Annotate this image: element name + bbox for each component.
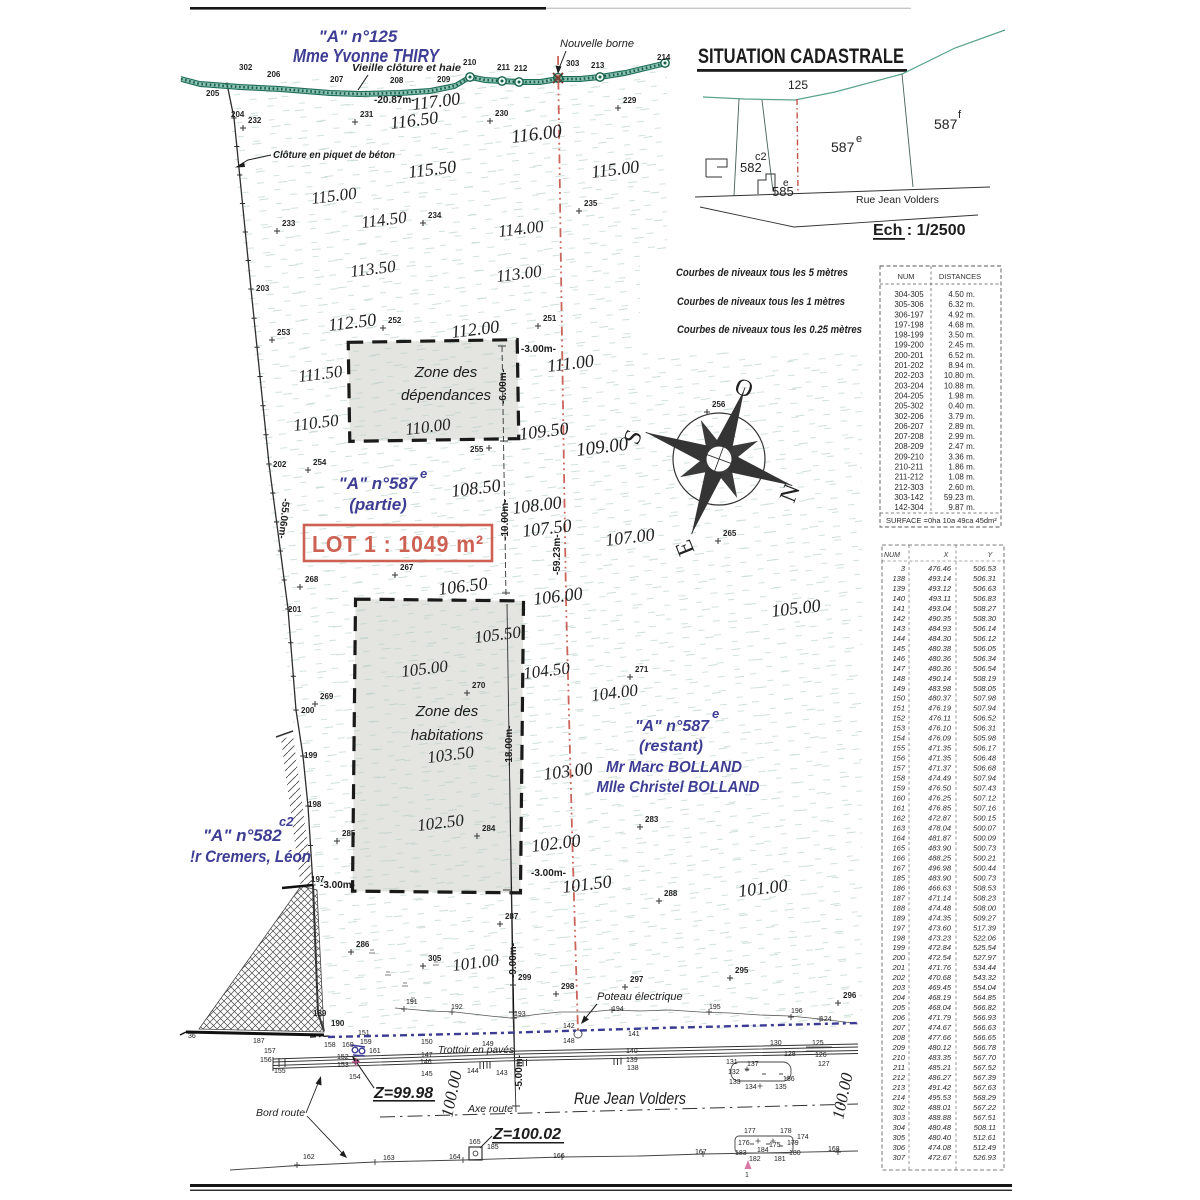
svg-text:Nouvelle borne: Nouvelle borne (560, 38, 634, 50)
svg-text:500.73: 500.73 (973, 873, 997, 882)
svg-text:481.87: 481.87 (928, 834, 952, 843)
svg-text:476.25: 476.25 (928, 794, 952, 803)
svg-text:128: 128 (784, 1051, 796, 1058)
svg-text:508.53: 508.53 (973, 883, 997, 892)
svg-text:8.94 m.: 8.94 m. (948, 361, 975, 370)
svg-text:500.21: 500.21 (973, 853, 996, 862)
svg-text:567.51: 567.51 (973, 1113, 996, 1122)
svg-text:476.09: 476.09 (928, 734, 952, 743)
svg-text:133: 133 (729, 1079, 741, 1086)
svg-text:3.50 m.: 3.50 m. (948, 331, 975, 340)
svg-text:534.44: 534.44 (973, 963, 996, 972)
svg-text:Courbes de niveaux tous les 1: Courbes de niveaux tous les 1 mètres (677, 296, 845, 308)
svg-text:256: 256 (712, 400, 726, 409)
svg-text:303: 303 (566, 59, 580, 68)
svg-text:206: 206 (891, 1013, 905, 1022)
svg-text:(restant): (restant) (639, 738, 703, 755)
svg-text:163: 163 (892, 824, 905, 833)
svg-text:197: 197 (311, 875, 325, 884)
svg-text:1.98 m.: 1.98 m. (948, 392, 975, 401)
svg-text:140: 140 (626, 1048, 638, 1055)
svg-text:522.06: 522.06 (973, 933, 997, 942)
svg-text:213: 213 (591, 61, 605, 70)
svg-text:190: 190 (331, 1019, 345, 1028)
svg-text:302: 302 (239, 63, 253, 72)
svg-text:142: 142 (892, 614, 905, 623)
svg-text:471.35: 471.35 (928, 754, 952, 763)
svg-text:154: 154 (892, 734, 905, 743)
svg-text:525.54: 525.54 (973, 943, 996, 952)
svg-text:139: 139 (892, 584, 905, 593)
svg-text:1.08 m.: 1.08 m. (948, 473, 975, 482)
svg-text:508.11: 508.11 (974, 1123, 996, 1132)
svg-text:305-306: 305-306 (894, 300, 924, 309)
svg-text:507.94: 507.94 (973, 704, 996, 713)
svg-text:209: 209 (437, 75, 451, 84)
svg-text:146: 146 (892, 654, 905, 663)
svg-text:-3.00m-: -3.00m- (521, 344, 556, 355)
svg-text:566.63: 566.63 (973, 1023, 997, 1032)
svg-text:196: 196 (791, 1008, 803, 1015)
svg-text:199: 199 (892, 943, 905, 952)
svg-text:212: 212 (514, 64, 528, 73)
svg-text:298: 298 (561, 982, 575, 991)
svg-text:189: 189 (313, 1009, 327, 1018)
svg-text:505.98: 505.98 (973, 734, 997, 743)
svg-text:160: 160 (892, 794, 905, 803)
svg-text:151: 151 (892, 704, 905, 713)
svg-text:471.79: 471.79 (928, 1013, 952, 1022)
svg-text:285: 285 (342, 829, 356, 838)
svg-text:Zone des: Zone des (414, 364, 478, 381)
svg-text:156: 156 (892, 754, 905, 763)
svg-text:212-303: 212-303 (894, 483, 924, 492)
svg-text:198-199: 198-199 (894, 331, 924, 340)
svg-text:564.85: 564.85 (973, 993, 997, 1002)
svg-text:295: 295 (735, 966, 749, 975)
svg-text:201: 201 (288, 605, 302, 614)
svg-text:144: 144 (467, 1068, 479, 1075)
svg-text:59.23 m.: 59.23 m. (944, 493, 975, 502)
svg-text:211: 211 (497, 63, 510, 72)
svg-text:200: 200 (301, 706, 315, 715)
svg-text:231: 231 (360, 110, 374, 119)
svg-text:476.19: 476.19 (928, 704, 952, 713)
svg-text:468.04: 468.04 (928, 1003, 951, 1012)
svg-text:187: 187 (892, 893, 905, 902)
svg-text:512.61: 512.61 (973, 1133, 996, 1142)
svg-text:209: 209 (891, 1043, 905, 1052)
svg-text:187: 187 (253, 1038, 265, 1045)
svg-text:506.53: 506.53 (973, 564, 997, 573)
svg-text:490.14: 490.14 (928, 674, 951, 683)
svg-text:214: 214 (657, 53, 671, 62)
svg-text:164: 164 (449, 1154, 461, 1161)
svg-text:468.19: 468.19 (928, 993, 952, 1002)
svg-text:207-208: 207-208 (894, 432, 924, 441)
svg-text:157: 157 (264, 1048, 276, 1055)
svg-text:200: 200 (891, 953, 905, 962)
svg-text:Clôture en piquet de béton: Clôture en piquet de béton (273, 149, 395, 161)
svg-text:506.34: 506.34 (973, 654, 996, 663)
svg-text:284: 284 (482, 824, 496, 833)
svg-text:472.54: 472.54 (928, 953, 951, 962)
svg-text:306: 306 (892, 1143, 905, 1152)
svg-text:254: 254 (313, 458, 327, 467)
svg-text:567.52: 567.52 (973, 1063, 997, 1072)
svg-text:232: 232 (248, 116, 262, 125)
svg-text:142-304: 142-304 (894, 503, 924, 512)
svg-text:484.93: 484.93 (928, 624, 952, 633)
svg-text:158: 158 (324, 1042, 336, 1049)
svg-text:567.22: 567.22 (973, 1103, 997, 1112)
svg-text:2.99 m.: 2.99 m. (948, 432, 975, 441)
svg-text:151: 151 (358, 1030, 370, 1037)
svg-text:3.36 m.: 3.36 m. (948, 452, 975, 461)
svg-text:287: 287 (505, 912, 519, 921)
svg-text:480.36: 480.36 (928, 664, 952, 673)
svg-text:161: 161 (892, 804, 905, 813)
svg-text:199: 199 (304, 751, 318, 760)
svg-text:566.78: 566.78 (973, 1043, 997, 1052)
svg-text:142: 142 (563, 1023, 575, 1030)
svg-text:SURFACE =: SURFACE = (886, 516, 929, 525)
svg-text:251: 251 (543, 314, 557, 323)
svg-text:Z=100.02: Z=100.02 (492, 1126, 561, 1143)
svg-text:202: 202 (273, 460, 287, 469)
svg-text:163: 163 (383, 1155, 395, 1162)
svg-text:210: 210 (463, 58, 477, 67)
svg-text:182: 182 (749, 1156, 761, 1163)
svg-text:127: 127 (818, 1061, 830, 1068)
svg-text:483.90: 483.90 (928, 843, 952, 852)
svg-text:230: 230 (495, 109, 509, 118)
svg-text:"A" n°587: "A" n°587 (339, 474, 419, 493)
svg-text:9.87 m.: 9.87 m. (948, 503, 975, 512)
svg-text:506.31: 506.31 (973, 574, 996, 583)
svg-text:4.50 m.: 4.50 m. (948, 290, 975, 299)
svg-text:-59.23m-: -59.23m- (552, 534, 563, 575)
svg-text:165: 165 (892, 843, 905, 852)
svg-text:495.53: 495.53 (928, 1093, 952, 1102)
svg-text:-6.00m-: -6.00m- (498, 369, 509, 404)
svg-text:Ech : 1/2500: Ech : 1/2500 (873, 222, 966, 239)
svg-text:203: 203 (891, 983, 905, 992)
svg-text:471.14: 471.14 (928, 893, 951, 902)
svg-text:126: 126 (815, 1052, 827, 1059)
svg-text:493.12: 493.12 (928, 584, 952, 593)
svg-text:512.49: 512.49 (973, 1143, 997, 1152)
svg-text:474.67: 474.67 (928, 1023, 952, 1032)
svg-text:Bord route: Bord route (256, 1107, 305, 1119)
svg-text:506.05: 506.05 (973, 644, 997, 653)
svg-text:488.01: 488.01 (928, 1103, 951, 1112)
svg-text:136: 136 (783, 1076, 795, 1083)
svg-text:Rue Jean Volders: Rue Jean Volders (574, 1089, 686, 1108)
svg-text:267: 267 (400, 563, 414, 572)
svg-text:155: 155 (892, 744, 905, 753)
svg-text:480.48: 480.48 (928, 1123, 952, 1132)
svg-text:484.30: 484.30 (928, 634, 952, 643)
svg-text:485.21: 485.21 (928, 1063, 951, 1072)
svg-text:e: e (420, 466, 427, 481)
svg-text:488.25: 488.25 (928, 853, 952, 862)
svg-text:543.32: 543.32 (973, 973, 997, 982)
svg-text:149: 149 (892, 684, 905, 693)
svg-text:506.54: 506.54 (973, 664, 996, 673)
svg-text:500.07: 500.07 (973, 824, 997, 833)
svg-text:211-212: 211-212 (895, 473, 924, 482)
svg-text:2.89 m.: 2.89 m. (948, 422, 975, 431)
svg-text:302-206: 302-206 (894, 412, 924, 421)
svg-text:207: 207 (330, 75, 344, 84)
svg-text:506.14: 506.14 (973, 624, 996, 633)
svg-text:4.92 m.: 4.92 m. (948, 310, 975, 319)
svg-text:150: 150 (892, 694, 905, 703)
svg-text:255: 255 (470, 445, 484, 454)
svg-text:567.70: 567.70 (973, 1053, 997, 1062)
svg-text:471.35: 471.35 (928, 744, 952, 753)
svg-text:197-198: 197-198 (894, 320, 924, 329)
svg-text:152: 152 (337, 1054, 349, 1061)
svg-text:508.23: 508.23 (973, 893, 997, 902)
svg-text:208: 208 (390, 76, 404, 85)
svg-text:Mr Marc BOLLAND: Mr Marc BOLLAND (606, 759, 742, 776)
svg-text:201: 201 (891, 963, 905, 972)
svg-text:175: 175 (769, 1142, 781, 1149)
svg-text:137: 137 (747, 1061, 759, 1068)
svg-text:205: 205 (206, 89, 220, 98)
svg-text:483.90: 483.90 (928, 873, 952, 882)
svg-text:480.40: 480.40 (928, 1133, 952, 1142)
svg-text:506.17: 506.17 (973, 744, 997, 753)
svg-text:270: 270 (472, 681, 486, 690)
svg-text:138: 138 (892, 574, 905, 583)
svg-text:198: 198 (892, 933, 905, 942)
svg-text:476.50: 476.50 (928, 784, 952, 793)
svg-text:180: 180 (789, 1150, 801, 1157)
svg-text:303: 303 (892, 1113, 905, 1122)
svg-text:480.12: 480.12 (928, 1043, 952, 1052)
svg-text:206-207: 206-207 (894, 422, 924, 431)
svg-text:"A" n°587: "A" n°587 (635, 718, 710, 735)
svg-text:181: 181 (774, 1156, 786, 1163)
svg-text:168: 168 (828, 1146, 840, 1153)
svg-text:130: 130 (770, 1040, 782, 1047)
svg-text:197: 197 (892, 923, 905, 932)
svg-text:NUM: NUM (897, 272, 914, 281)
svg-text:185: 185 (892, 873, 905, 882)
svg-text:147: 147 (892, 664, 905, 673)
svg-text:204: 204 (891, 993, 905, 1002)
svg-text:488.88: 488.88 (928, 1113, 952, 1122)
svg-text:c2: c2 (755, 151, 767, 163)
svg-text:566.65: 566.65 (973, 1033, 997, 1042)
svg-text:474.08: 474.08 (928, 1143, 952, 1152)
svg-text:500.15: 500.15 (973, 814, 997, 823)
svg-text:233: 233 (282, 219, 296, 228)
svg-text:Trottoir en pavés: Trottoir en pavés (438, 1044, 515, 1056)
svg-text:517.39: 517.39 (973, 923, 997, 932)
svg-text:470.68: 470.68 (928, 973, 952, 982)
svg-text:159: 159 (360, 1039, 372, 1046)
svg-text:145: 145 (421, 1071, 433, 1078)
svg-text:134: 134 (745, 1084, 757, 1091)
svg-text:139: 139 (626, 1057, 638, 1064)
svg-text:6.32 m.: 6.32 m. (948, 300, 975, 309)
svg-text:303-142: 303-142 (894, 493, 924, 502)
svg-text:10.88 m.: 10.88 m. (944, 381, 975, 390)
svg-text:148: 148 (563, 1038, 575, 1045)
svg-text:203-204: 203-204 (894, 381, 924, 390)
svg-text:144: 144 (892, 634, 905, 643)
svg-text:159: 159 (892, 784, 905, 793)
svg-text:567.63: 567.63 (973, 1083, 997, 1092)
svg-text:476.46: 476.46 (928, 564, 952, 573)
svg-text:286: 286 (356, 940, 370, 949)
svg-text:191: 191 (406, 999, 418, 1006)
svg-text:283: 283 (645, 815, 659, 824)
svg-text:204-205: 204-205 (894, 392, 924, 401)
svg-text:Axe route: Axe route (467, 1103, 513, 1115)
svg-text:476.10: 476.10 (928, 724, 952, 733)
svg-text:304: 304 (892, 1123, 905, 1132)
svg-text:Zone des: Zone des (415, 703, 479, 720)
svg-text:SITUATION CADASTRALE: SITUATION CADASTRALE (698, 45, 904, 68)
svg-text:177: 177 (744, 1128, 756, 1135)
svg-text:165: 165 (469, 1139, 481, 1146)
svg-text:1: 1 (745, 1172, 749, 1179)
svg-text:!r Cremers, Léon: !r Cremers, Léon (190, 847, 311, 866)
svg-text:"A" n°582: "A" n°582 (203, 826, 282, 845)
svg-text:587: 587 (831, 139, 855, 155)
svg-text:145: 145 (892, 644, 905, 653)
svg-text:dépendances: dépendances (401, 387, 492, 404)
svg-text:2.47 m.: 2.47 m. (948, 442, 975, 451)
svg-text:habitations: habitations (411, 727, 484, 744)
svg-text:178: 178 (780, 1128, 792, 1135)
svg-text:195: 195 (709, 1004, 721, 1011)
svg-text:208-209: 208-209 (894, 442, 924, 451)
svg-text:480.38: 480.38 (928, 644, 952, 653)
svg-text:1.86 m.: 1.86 m. (948, 463, 975, 472)
svg-text:305: 305 (892, 1133, 905, 1142)
svg-text:268: 268 (305, 575, 319, 584)
svg-text:526.93: 526.93 (973, 1153, 997, 1162)
svg-text:202-203: 202-203 (894, 371, 924, 380)
svg-text:166: 166 (553, 1153, 565, 1160)
svg-text:271: 271 (635, 665, 649, 674)
svg-text:184: 184 (757, 1147, 769, 1154)
svg-text:-10.00m-: -10.00m- (500, 499, 511, 540)
svg-text:493.11: 493.11 (929, 594, 951, 603)
svg-text:3.79 m.: 3.79 m. (948, 412, 975, 421)
svg-text:265: 265 (723, 529, 737, 538)
svg-text:554.04: 554.04 (973, 983, 996, 992)
svg-text:210: 210 (891, 1053, 905, 1062)
svg-text:DISTANCES: DISTANCES (939, 272, 981, 281)
svg-text:186: 186 (892, 883, 905, 892)
svg-text:150: 150 (421, 1039, 433, 1046)
svg-text:Courbes de niveaux tous les 5: Courbes de niveaux tous les 5 mètres (676, 267, 848, 279)
svg-text:36: 36 (188, 1033, 196, 1040)
svg-text:124: 124 (820, 1016, 832, 1023)
svg-text:Courbes de niveaux tous les 0.: Courbes de niveaux tous les 0.25 mètres (677, 324, 862, 336)
svg-text:207: 207 (891, 1023, 905, 1032)
svg-text:506.52: 506.52 (973, 714, 997, 723)
svg-text:568.29: 568.29 (973, 1093, 997, 1102)
svg-text:132: 132 (728, 1069, 740, 1076)
svg-text:500.73: 500.73 (973, 843, 997, 852)
svg-text:167: 167 (695, 1149, 707, 1156)
svg-text:LOT 1 : 1049 m²: LOT 1 : 1049 m² (312, 531, 484, 557)
svg-text:213: 213 (891, 1083, 905, 1092)
svg-text:135: 135 (775, 1084, 787, 1091)
svg-text:155: 155 (274, 1068, 286, 1075)
svg-text:125: 125 (812, 1040, 824, 1047)
svg-text:204: 204 (231, 110, 245, 119)
svg-text:466.63: 466.63 (928, 883, 952, 892)
svg-text:158: 158 (892, 774, 905, 783)
svg-text:490.35: 490.35 (928, 614, 952, 623)
svg-text:307: 307 (892, 1153, 905, 1162)
svg-text:209-210: 209-210 (894, 452, 924, 461)
svg-text:Mlle Christel BOLLAND: Mlle Christel BOLLAND (597, 779, 760, 796)
svg-text:304-305: 304-305 (894, 290, 924, 299)
svg-text:146: 146 (420, 1059, 432, 1066)
svg-text:160: 160 (342, 1042, 354, 1049)
svg-text:507.94: 507.94 (973, 774, 996, 783)
svg-text:252: 252 (388, 316, 402, 325)
svg-text:6.52 m.: 6.52 m. (948, 351, 975, 360)
svg-text:156: 156 (260, 1057, 272, 1064)
svg-text:162: 162 (303, 1154, 315, 1161)
svg-text:212: 212 (891, 1073, 905, 1082)
svg-text:500.09: 500.09 (973, 834, 997, 843)
svg-text:508.27: 508.27 (973, 604, 997, 613)
svg-text:507.43: 507.43 (973, 784, 997, 793)
svg-text:-18.00m-: -18.00m- (504, 725, 515, 766)
svg-text:153: 153 (337, 1062, 349, 1069)
svg-text:174: 174 (797, 1134, 809, 1141)
svg-text:148: 148 (892, 674, 905, 683)
svg-text:Vieille clôture et haie: Vieille clôture et haie (352, 62, 461, 74)
svg-text:202: 202 (891, 973, 905, 982)
svg-text:472.67: 472.67 (928, 1153, 952, 1162)
svg-text:506.12: 506.12 (973, 634, 997, 643)
svg-text:587: 587 (934, 116, 958, 132)
svg-text:269: 269 (320, 692, 334, 701)
svg-text:205-302: 205-302 (894, 402, 924, 411)
svg-text:229: 229 (623, 96, 637, 105)
svg-text:474.49: 474.49 (928, 774, 952, 783)
svg-text:143: 143 (496, 1070, 508, 1077)
svg-text:138: 138 (627, 1065, 639, 1072)
svg-text:X: X (943, 552, 949, 559)
svg-text:166: 166 (892, 853, 905, 862)
svg-text:480.37: 480.37 (928, 694, 952, 703)
svg-text:476.11: 476.11 (929, 714, 951, 723)
svg-text:0ha 10a 49ca 45dm²: 0ha 10a 49ca 45dm² (928, 516, 997, 525)
svg-text:480.36: 480.36 (928, 654, 952, 663)
svg-text:296: 296 (843, 991, 857, 1000)
svg-text:483.35: 483.35 (928, 1053, 952, 1062)
svg-text:203: 203 (256, 284, 270, 293)
svg-text:509.27: 509.27 (973, 913, 997, 922)
svg-text:474.35: 474.35 (928, 913, 952, 922)
svg-text:131: 131 (726, 1059, 738, 1066)
svg-text:507.16: 507.16 (973, 804, 997, 813)
